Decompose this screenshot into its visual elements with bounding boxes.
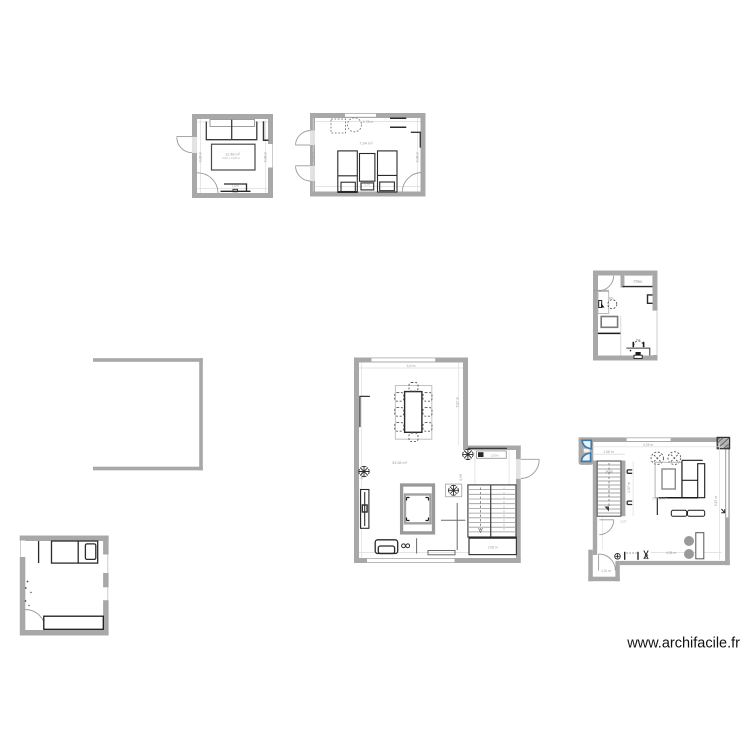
svg-text:bur.: bur.	[636, 338, 641, 342]
svg-text:www.archifacile.fr: www.archifacile.fr	[626, 636, 740, 652]
svg-text:0,76: 0,76	[364, 182, 370, 186]
svg-text:0,27: 0,27	[621, 519, 627, 523]
svg-text:Chau.: Chau.	[633, 280, 642, 284]
svg-text:27,52 m²: 27,52 m²	[652, 497, 667, 501]
svg-text:14,05: 14,05	[605, 469, 613, 473]
svg-text:PC: PC	[610, 296, 614, 300]
svg-text:7,94 m²: 7,94 m²	[359, 141, 373, 146]
svg-text:0,98: 0,98	[459, 474, 463, 480]
svg-text:5,87 m: 5,87 m	[455, 397, 459, 408]
svg-text:3,08 m: 3,08 m	[264, 152, 268, 163]
svg-text:4,06 x 3,08 m: 4,06 x 3,08 m	[222, 156, 241, 160]
svg-text:1,01 m: 1,01 m	[601, 569, 611, 573]
svg-text:2,57 m: 2,57 m	[627, 482, 631, 493]
svg-text:1,08 m: 1,08 m	[603, 450, 614, 454]
svg-text:4,78 m: 4,78 m	[363, 120, 374, 124]
svg-text:4,08 m: 4,08 m	[666, 551, 677, 555]
svg-text:4,9 m: 4,9 m	[407, 364, 416, 368]
svg-text:1,6m: 1,6m	[231, 184, 238, 188]
svg-text:5,87 m: 5,87 m	[714, 496, 718, 507]
svg-text:2,08 m: 2,08 m	[488, 546, 498, 550]
svg-text:3,08 m: 3,08 m	[311, 152, 315, 163]
svg-text:2,07m: 2,07m	[491, 453, 500, 457]
svg-text:33,08 m²: 33,08 m²	[392, 461, 408, 465]
svg-text:2: 2	[644, 554, 648, 561]
svg-text:3,08 m: 3,08 m	[416, 152, 420, 163]
svg-text:3,08 m: 3,08 m	[199, 152, 203, 163]
svg-text:4,78 m: 4,78 m	[643, 443, 654, 447]
